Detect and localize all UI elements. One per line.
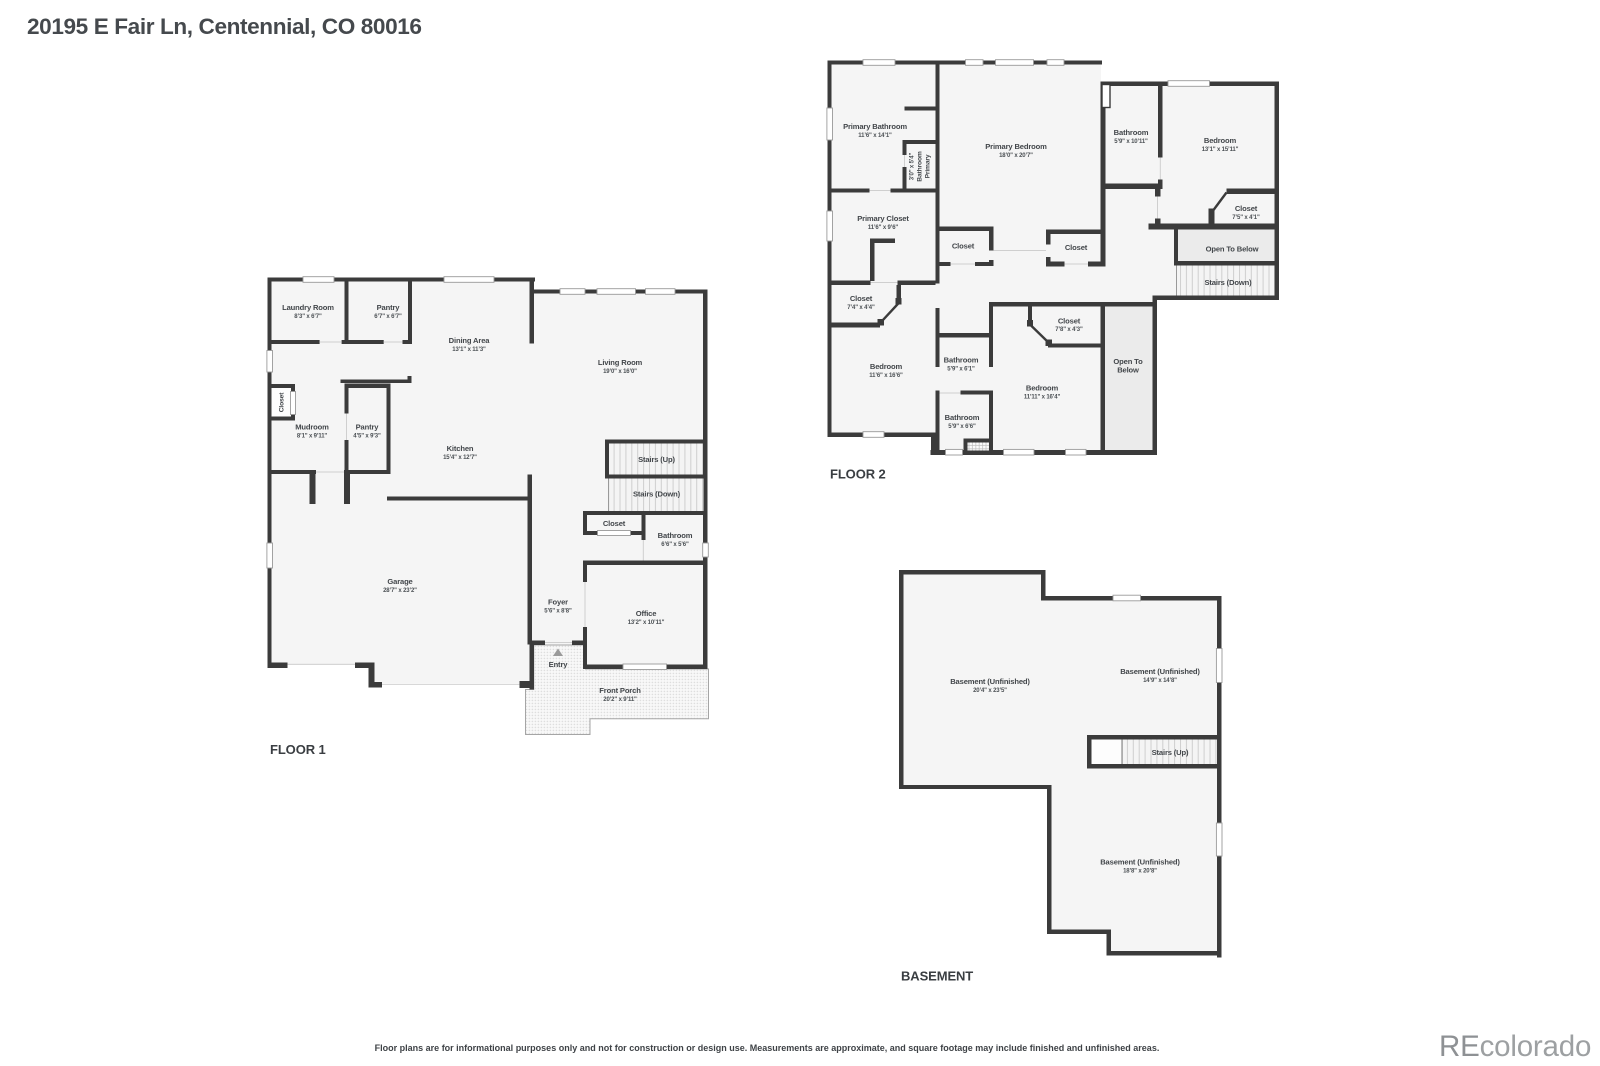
svg-text:18’0" x 20’7": 18’0" x 20’7" bbox=[999, 153, 1033, 159]
svg-text:Bathroom: Bathroom bbox=[1114, 128, 1149, 137]
svg-text:7’8" x 4’3": 7’8" x 4’3" bbox=[1055, 327, 1083, 333]
svg-text:6’6" x 5’6": 6’6" x 5’6" bbox=[661, 542, 689, 548]
svg-text:5’9" x 6’6": 5’9" x 6’6" bbox=[948, 424, 976, 430]
svg-text:FLOOR 1: FLOOR 1 bbox=[270, 742, 326, 757]
svg-text:3’0" x 5’4": 3’0" x 5’4" bbox=[910, 153, 916, 181]
svg-text:5’6" x 8’8": 5’6" x 8’8" bbox=[544, 609, 572, 615]
svg-text:11’6" x 9’6": 11’6" x 9’6" bbox=[868, 225, 899, 231]
svg-text:4’5" x 9’3": 4’5" x 9’3" bbox=[353, 434, 381, 440]
svg-text:Entry: Entry bbox=[549, 660, 569, 669]
svg-text:BASEMENT: BASEMENT bbox=[901, 969, 973, 984]
svg-text:13’1" x 11’3": 13’1" x 11’3" bbox=[452, 347, 486, 353]
svg-text:28’7" x 23’2": 28’7" x 23’2" bbox=[383, 588, 417, 594]
svg-text:13’1" x 15’11": 13’1" x 15’11" bbox=[1202, 147, 1239, 153]
svg-text:8’1" x 9’11": 8’1" x 9’11" bbox=[297, 434, 328, 440]
svg-text:Office: Office bbox=[636, 609, 657, 618]
svg-text:Garage: Garage bbox=[387, 577, 412, 586]
svg-text:5’9" x 10’11": 5’9" x 10’11" bbox=[1114, 139, 1148, 145]
svg-text:18’8" x 20’8": 18’8" x 20’8" bbox=[1123, 869, 1157, 875]
svg-text:Floor plans are for informatio: Floor plans are for informational purpos… bbox=[375, 1043, 1160, 1053]
svg-text:11’6" x 16’6": 11’6" x 16’6" bbox=[869, 373, 903, 379]
svg-text:Bedroom: Bedroom bbox=[870, 362, 903, 371]
svg-text:20’2" x 9’11": 20’2" x 9’11" bbox=[603, 697, 637, 703]
svg-text:6’7" x 6’7": 6’7" x 6’7" bbox=[374, 314, 402, 320]
svg-text:Primary Bedroom: Primary Bedroom bbox=[985, 142, 1047, 151]
svg-text:Pantry: Pantry bbox=[356, 422, 380, 431]
svg-text:5’9" x 6’1": 5’9" x 6’1" bbox=[947, 367, 975, 373]
svg-text:Bedroom: Bedroom bbox=[1204, 136, 1237, 145]
svg-text:Pantry: Pantry bbox=[377, 303, 401, 312]
svg-text:11’11" x 16’4": 11’11" x 16’4" bbox=[1024, 395, 1061, 401]
svg-text:Bathroom: Bathroom bbox=[945, 413, 980, 422]
svg-text:Stairs (Down): Stairs (Down) bbox=[633, 489, 681, 498]
svg-text:Closet: Closet bbox=[850, 294, 873, 303]
svg-text:Foyer: Foyer bbox=[548, 597, 568, 606]
svg-text:Stairs (Up): Stairs (Up) bbox=[1152, 748, 1189, 757]
svg-text:Closet: Closet bbox=[1065, 243, 1088, 252]
svg-text:Stairs (Down): Stairs (Down) bbox=[1205, 278, 1253, 287]
svg-text:Mudroom: Mudroom bbox=[295, 422, 329, 431]
svg-text:Basement (Unfinished): Basement (Unfinished) bbox=[950, 677, 1030, 686]
svg-text:Laundry Room: Laundry Room bbox=[282, 303, 334, 312]
svg-text:Basement (Unfinished): Basement (Unfinished) bbox=[1120, 667, 1200, 676]
svg-text:Dining Area: Dining Area bbox=[449, 336, 491, 345]
svg-text:Closet: Closet bbox=[279, 392, 286, 412]
svg-text:Bathroom: Bathroom bbox=[917, 151, 924, 182]
svg-text:Basement (Unfinished): Basement (Unfinished) bbox=[1100, 857, 1180, 866]
svg-text:Stairs (Up): Stairs (Up) bbox=[638, 455, 675, 464]
svg-text:11’6" x 14’1": 11’6" x 14’1" bbox=[858, 133, 892, 139]
svg-text:Closet: Closet bbox=[603, 519, 626, 528]
svg-text:FLOOR 2: FLOOR 2 bbox=[830, 466, 886, 481]
svg-text:8’3" x 6’7": 8’3" x 6’7" bbox=[294, 314, 322, 320]
svg-text:Primary Bathroom: Primary Bathroom bbox=[843, 122, 907, 131]
svg-text:Bathroom: Bathroom bbox=[658, 531, 693, 540]
svg-text:Front Porch: Front Porch bbox=[599, 686, 641, 695]
svg-text:Kitchen: Kitchen bbox=[447, 444, 474, 453]
svg-text:20195 E Fair Ln, Centennial, C: 20195 E Fair Ln, Centennial, CO 80016 bbox=[27, 14, 422, 39]
svg-text:7’4" x 4’4": 7’4" x 4’4" bbox=[847, 305, 875, 311]
svg-text:Bathroom: Bathroom bbox=[944, 355, 979, 364]
svg-text:Open To Below: Open To Below bbox=[1206, 245, 1259, 254]
svg-text:Bedroom: Bedroom bbox=[1026, 383, 1059, 392]
svg-text:Living Room: Living Room bbox=[598, 358, 643, 367]
svg-text:20’4" x 23’5": 20’4" x 23’5" bbox=[973, 688, 1007, 694]
svg-text:Closet: Closet bbox=[1235, 204, 1258, 213]
svg-text:Closet: Closet bbox=[1058, 316, 1081, 325]
svg-text:REcolorado: REcolorado bbox=[1439, 1030, 1591, 1063]
svg-text:Primary: Primary bbox=[925, 154, 932, 178]
svg-text:19’0" x 16’0": 19’0" x 16’0" bbox=[603, 369, 637, 375]
svg-text:13’2" x 10’11": 13’2" x 10’11" bbox=[628, 620, 665, 626]
svg-text:Closet: Closet bbox=[952, 241, 975, 250]
svg-text:7’5" x 4’1": 7’5" x 4’1" bbox=[1232, 215, 1260, 221]
svg-text:Below: Below bbox=[1117, 366, 1139, 375]
svg-text:14’9" x 14’8": 14’9" x 14’8" bbox=[1143, 678, 1177, 684]
svg-text:Primary Closet: Primary Closet bbox=[857, 214, 909, 223]
svg-text:15’4" x 12’7": 15’4" x 12’7" bbox=[443, 455, 477, 461]
